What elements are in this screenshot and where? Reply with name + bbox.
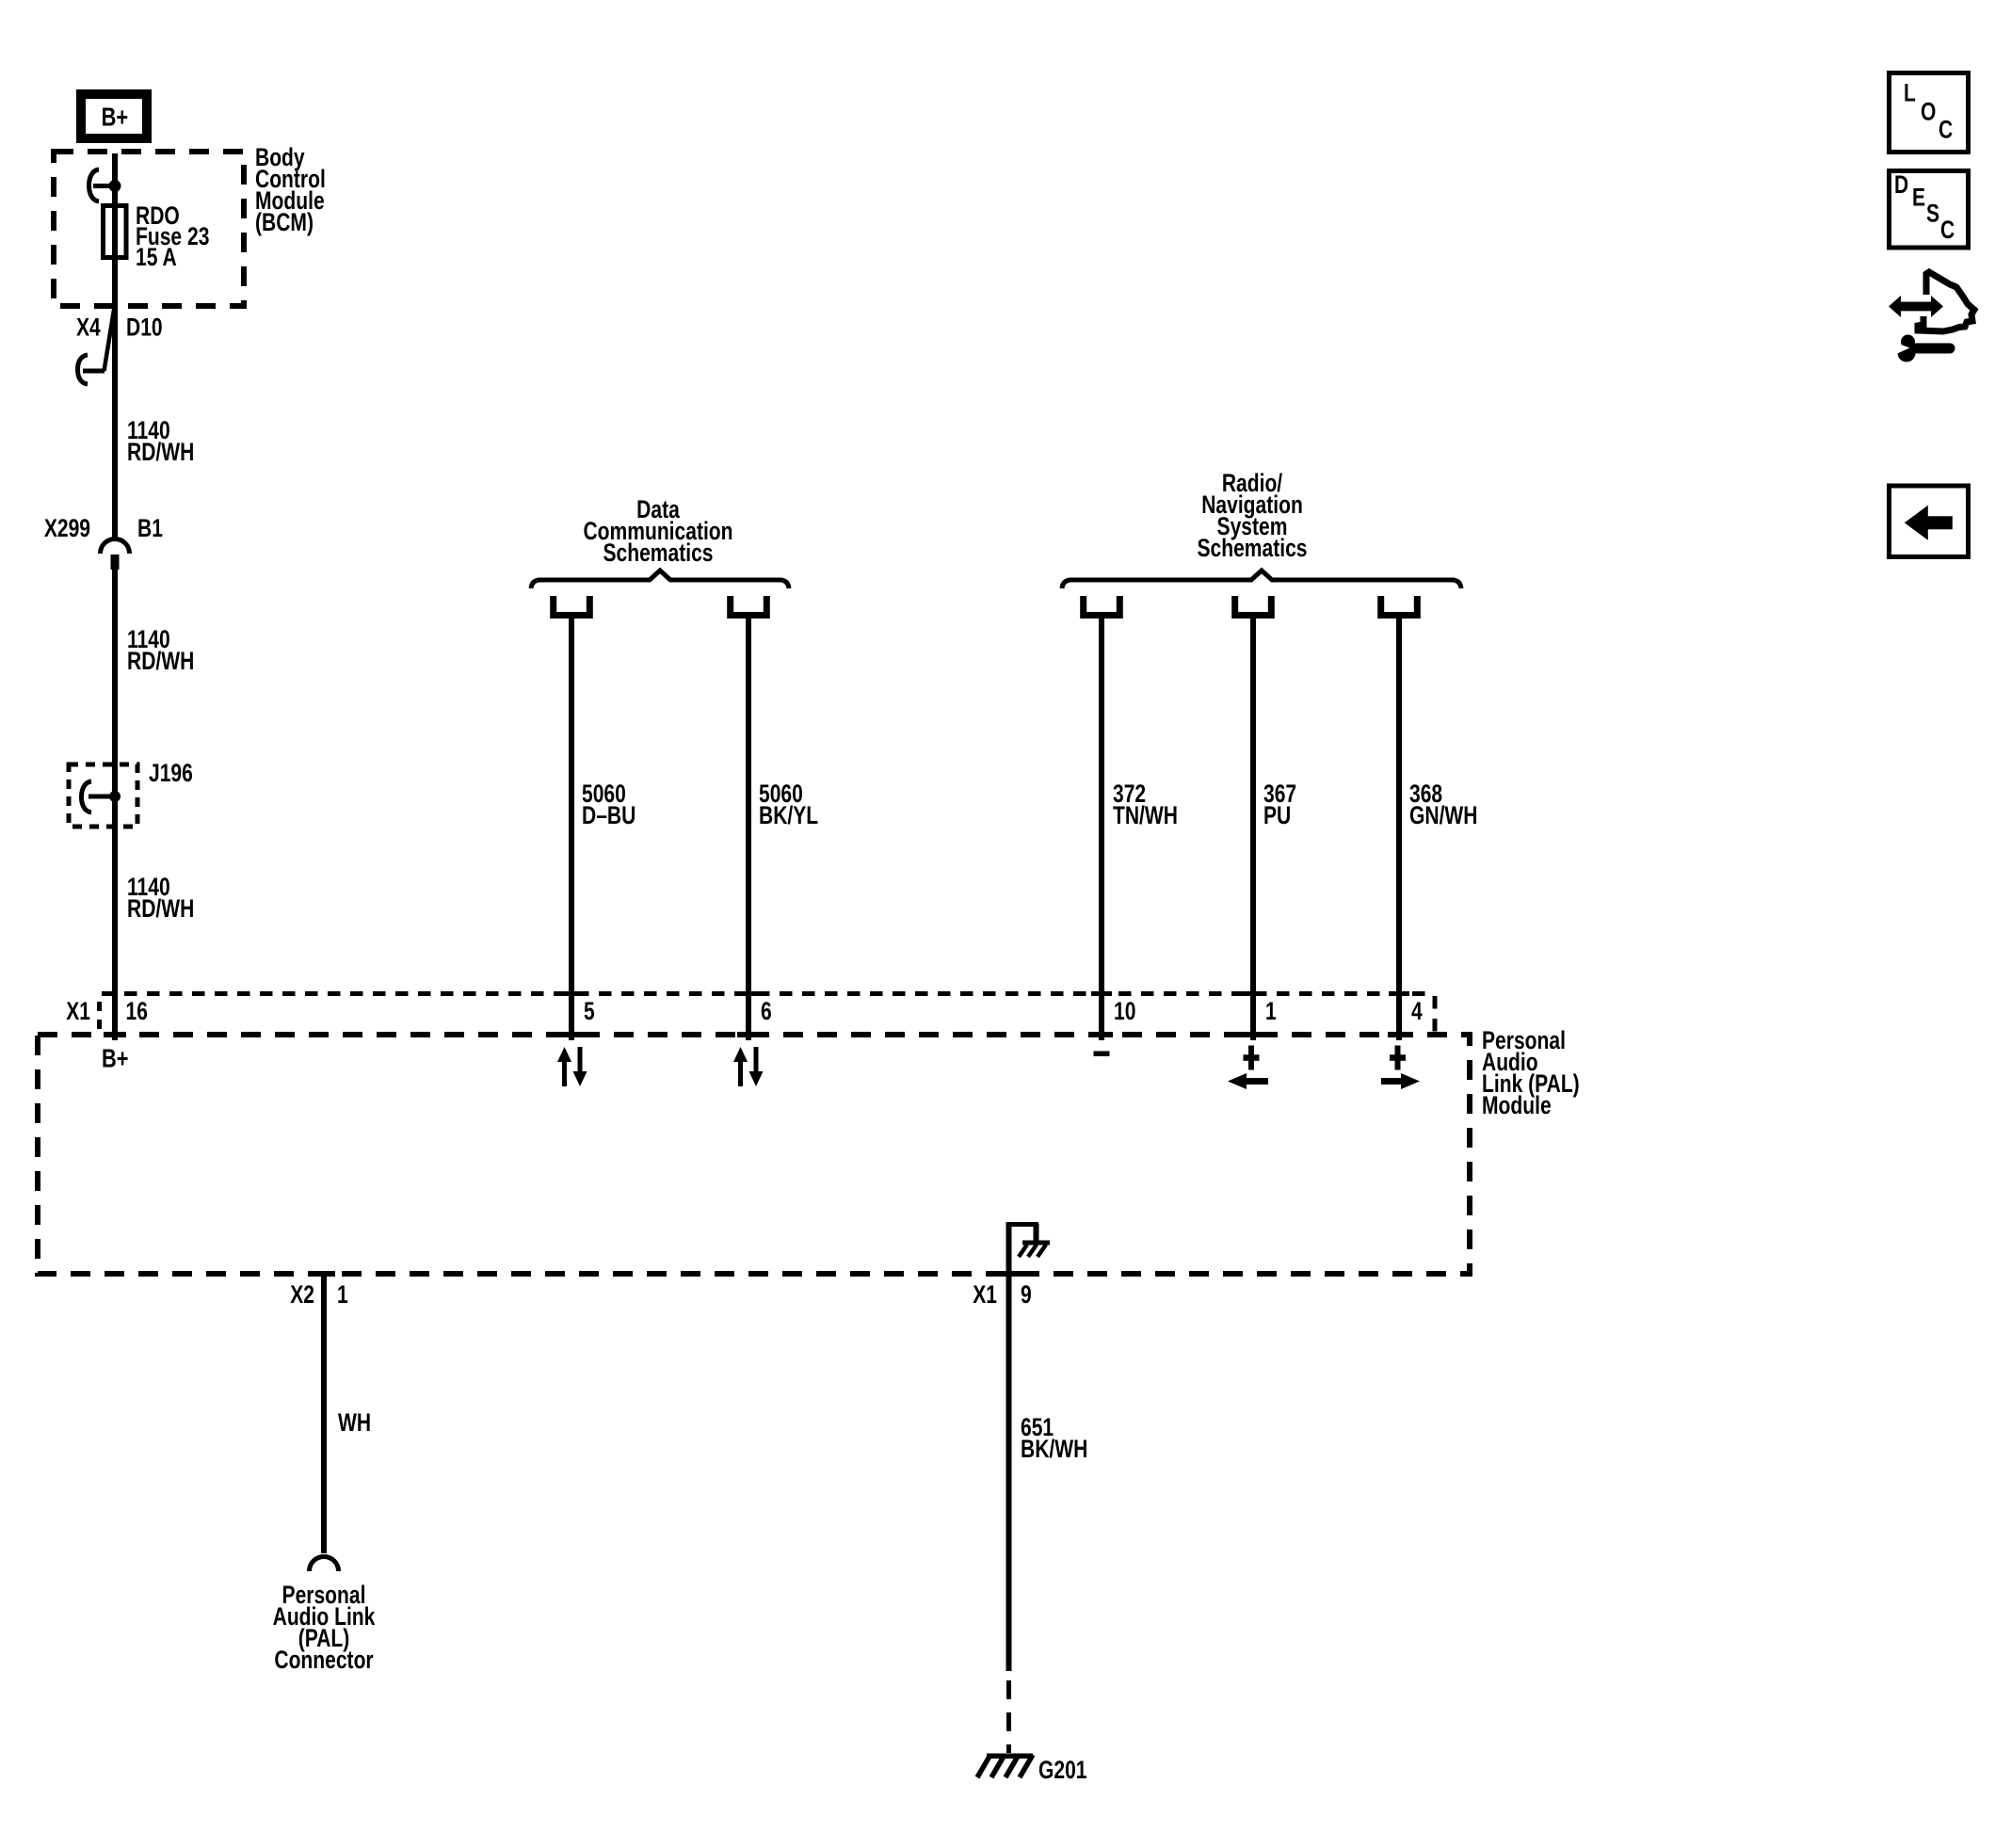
svg-text:J196: J196	[149, 760, 193, 788]
svg-text:9: 9	[1021, 1281, 1032, 1310]
svg-text:16: 16	[126, 998, 148, 1026]
svg-text:X1: X1	[66, 998, 90, 1026]
svg-text:O: O	[1921, 98, 1936, 126]
svg-text:X2: X2	[290, 1281, 314, 1310]
svg-text:X1: X1	[973, 1281, 997, 1310]
svg-text:4: 4	[1411, 998, 1423, 1026]
svg-text:L: L	[1904, 79, 1916, 107]
svg-text:PersonalAudio Link(PAL)Connect: PersonalAudio Link(PAL)Connector	[273, 1582, 376, 1675]
svg-text:5: 5	[584, 998, 595, 1026]
svg-text:C: C	[1939, 116, 1953, 144]
svg-text:S: S	[1926, 200, 1939, 228]
svg-text:X4: X4	[76, 313, 101, 342]
svg-text:B1: B1	[137, 515, 163, 543]
svg-text:1: 1	[1265, 998, 1277, 1026]
svg-text:D10: D10	[126, 313, 163, 342]
svg-text:WH: WH	[338, 1409, 371, 1438]
svg-text:X299: X299	[44, 515, 90, 543]
svg-text:C: C	[1940, 216, 1955, 244]
svg-text:10: 10	[1114, 998, 1135, 1026]
svg-text:E: E	[1912, 184, 1925, 212]
svg-text:1: 1	[337, 1281, 348, 1310]
svg-text:D: D	[1894, 171, 1908, 200]
svg-text:B+: B+	[102, 103, 129, 132]
svg-text:B+: B+	[102, 1044, 129, 1073]
svg-text:6: 6	[761, 998, 772, 1026]
svg-text:G201: G201	[1038, 1757, 1087, 1785]
